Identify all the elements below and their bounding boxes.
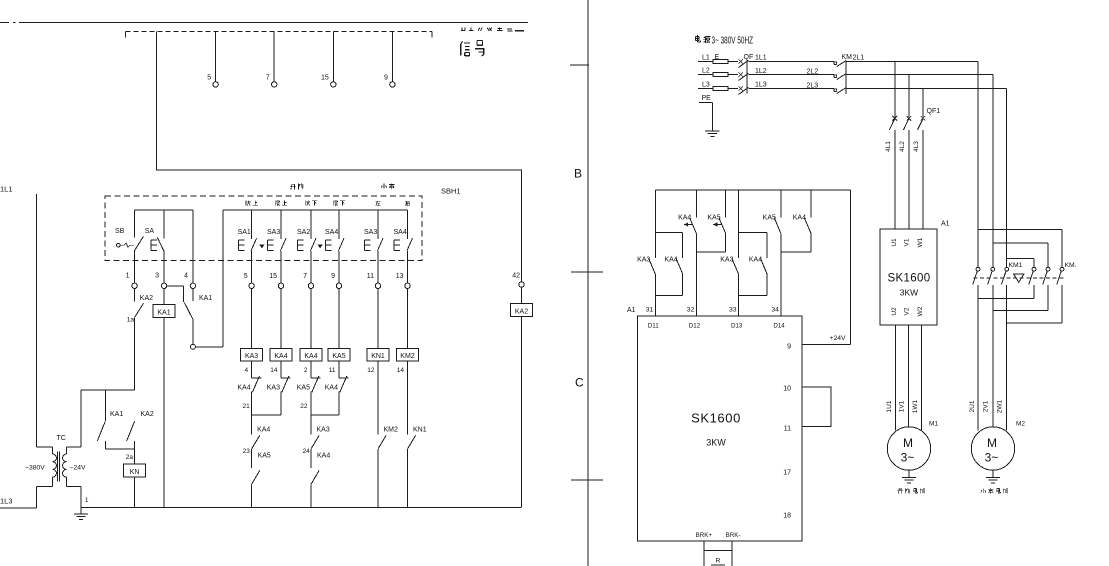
svg-text:M2: M2	[1016, 421, 1025, 428]
svg-text:3: 3	[155, 273, 159, 280]
svg-text:2L2: 2L2	[807, 69, 819, 76]
svg-text:A1: A1	[941, 221, 950, 228]
svg-text:7: 7	[266, 75, 270, 82]
svg-text:BRK+: BRK+	[696, 532, 713, 539]
svg-text:KA1: KA1	[199, 295, 212, 302]
svg-text:KN: KN	[130, 469, 140, 476]
svg-text:SA: SA	[145, 228, 155, 235]
svg-text:KA4: KA4	[325, 385, 338, 392]
svg-text:KA4: KA4	[793, 215, 806, 222]
svg-text:D11: D11	[648, 323, 659, 330]
svg-text:R: R	[716, 558, 721, 565]
svg-text:L2: L2	[702, 67, 710, 74]
svg-text:QF1: QF1	[927, 108, 941, 115]
svg-text:2: 2	[304, 367, 308, 374]
svg-text:3KW: 3KW	[900, 288, 918, 298]
svg-text:KA4: KA4	[749, 257, 762, 264]
svg-text:18: 18	[783, 512, 791, 519]
svg-text:KM2: KM2	[384, 427, 399, 434]
svg-text:D14: D14	[773, 323, 785, 330]
svg-text:U1: U1	[891, 238, 898, 247]
svg-text:KM: KM	[842, 54, 853, 61]
svg-text:KA5: KA5	[297, 385, 310, 392]
svg-text:SK1600: SK1600	[887, 273, 930, 285]
svg-text:1L3: 1L3	[755, 82, 767, 89]
svg-text:31: 31	[646, 307, 654, 314]
svg-text:1L1: 1L1	[755, 54, 767, 61]
svg-text:1L1: 1L1	[0, 185, 13, 194]
svg-text:KA3: KA3	[637, 257, 650, 264]
svg-text:C: C	[575, 376, 584, 390]
svg-text:V1: V1	[904, 238, 911, 246]
svg-text:1a: 1a	[127, 317, 135, 324]
svg-text:2U1: 2U1	[969, 400, 976, 412]
svg-text:KA3: KA3	[720, 257, 733, 264]
svg-text:12: 12	[367, 367, 375, 374]
svg-text:3~: 3~	[985, 451, 999, 465]
svg-text:2L3: 2L3	[807, 82, 819, 89]
svg-text:4L1: 4L1	[885, 141, 892, 152]
svg-text:B: B	[574, 167, 582, 181]
svg-text:4: 4	[184, 273, 188, 280]
svg-text:1L3: 1L3	[0, 497, 13, 506]
svg-text:9: 9	[331, 273, 335, 280]
svg-text:SK1600: SK1600	[691, 411, 741, 426]
svg-text:SA3: SA3	[267, 229, 280, 236]
svg-text:SBH1: SBH1	[441, 187, 461, 196]
svg-text:PE: PE	[702, 95, 712, 102]
svg-text:KA5: KA5	[332, 353, 345, 360]
svg-text:11: 11	[367, 273, 374, 280]
svg-text:~380V: ~380V	[25, 465, 45, 472]
svg-text:V2: V2	[904, 307, 911, 315]
svg-text:1U1: 1U1	[886, 400, 893, 412]
svg-text:KA5: KA5	[763, 215, 776, 222]
svg-text:M1: M1	[929, 421, 938, 428]
svg-text:KA3: KA3	[267, 385, 280, 392]
svg-text:9: 9	[384, 75, 388, 82]
svg-text:KN1: KN1	[413, 427, 427, 434]
svg-text:15: 15	[269, 273, 277, 280]
svg-text:W2: W2	[917, 306, 924, 316]
svg-text:33: 33	[729, 307, 737, 314]
svg-text:15: 15	[321, 75, 329, 82]
svg-text:KA2: KA2	[141, 411, 154, 418]
svg-text:2W1: 2W1	[996, 399, 1003, 413]
svg-text:17: 17	[783, 469, 791, 476]
svg-text:24: 24	[303, 448, 311, 455]
svg-text:KM2: KM2	[400, 353, 415, 360]
svg-text:7: 7	[303, 273, 307, 280]
svg-text:KA1: KA1	[157, 309, 170, 316]
svg-text:A1: A1	[627, 307, 636, 314]
svg-text:KA5: KA5	[707, 215, 720, 222]
svg-text:2L1: 2L1	[853, 54, 865, 61]
svg-text:1: 1	[126, 273, 130, 280]
svg-text:SB: SB	[115, 228, 125, 235]
svg-text:21: 21	[242, 403, 250, 410]
svg-text:1L2: 1L2	[755, 68, 767, 75]
svg-text:SA3: SA3	[364, 229, 377, 236]
svg-text:KA4: KA4	[274, 353, 287, 360]
svg-text:BRK-: BRK-	[726, 532, 741, 539]
svg-text:QF: QF	[744, 54, 754, 61]
svg-text:2a: 2a	[126, 454, 134, 461]
svg-text:KA3: KA3	[317, 427, 330, 434]
svg-text:D13: D13	[731, 323, 743, 330]
svg-text:KA2: KA2	[140, 295, 153, 302]
svg-text:KA3: KA3	[245, 353, 258, 360]
svg-text:2V1: 2V1	[983, 400, 990, 412]
svg-text:KA4: KA4	[678, 215, 691, 222]
svg-text:E: E	[715, 54, 720, 61]
svg-text:D12: D12	[689, 323, 701, 330]
svg-text:4L2: 4L2	[899, 141, 906, 152]
svg-text:22: 22	[300, 403, 308, 410]
svg-text:U2: U2	[891, 307, 898, 316]
svg-text:TC: TC	[57, 435, 66, 442]
svg-text:KN1: KN1	[371, 353, 385, 360]
svg-text:11: 11	[784, 426, 791, 433]
svg-text:3~: 3~	[901, 451, 915, 465]
svg-text:L3: L3	[702, 81, 710, 88]
svg-text:SA4: SA4	[325, 229, 338, 236]
svg-text:1V1: 1V1	[899, 400, 906, 412]
svg-text:KM1: KM1	[1009, 262, 1023, 269]
svg-text:KA4: KA4	[317, 453, 330, 460]
svg-text:42: 42	[512, 273, 520, 280]
svg-text:KA5: KA5	[258, 453, 271, 460]
svg-text:~24V: ~24V	[70, 465, 87, 472]
svg-text:KA4: KA4	[664, 257, 677, 264]
svg-text:11: 11	[329, 367, 336, 374]
svg-text:L1: L1	[702, 54, 710, 61]
svg-text:SA1: SA1	[238, 229, 251, 236]
svg-text:SA2: SA2	[297, 229, 310, 236]
svg-text:13: 13	[396, 273, 404, 280]
svg-text:3KW: 3KW	[706, 438, 726, 448]
svg-text:+24V: +24V	[830, 335, 847, 342]
svg-text:KA2: KA2	[515, 309, 528, 316]
svg-text:SA4: SA4	[394, 229, 407, 236]
svg-text:34: 34	[771, 307, 779, 314]
svg-text:4: 4	[244, 367, 248, 374]
svg-text:1: 1	[85, 497, 89, 504]
svg-text:9: 9	[787, 343, 791, 350]
svg-text:3~ 380V 50HZ: 3~ 380V 50HZ	[712, 36, 754, 47]
svg-text:KA1: KA1	[110, 411, 123, 418]
svg-text:14: 14	[397, 367, 405, 374]
svg-text:KM.: KM.	[1065, 262, 1077, 269]
svg-text:32: 32	[687, 307, 695, 314]
svg-text:KA4: KA4	[237, 385, 250, 392]
svg-text:5: 5	[207, 75, 211, 82]
svg-text:KA4: KA4	[257, 427, 270, 434]
svg-text:14: 14	[270, 367, 278, 374]
svg-text:4L3: 4L3	[913, 141, 920, 152]
svg-text:23: 23	[243, 448, 251, 455]
svg-text:10: 10	[783, 386, 791, 393]
svg-text:W1: W1	[917, 237, 924, 247]
svg-text:1W1: 1W1	[912, 399, 919, 413]
svg-text:M: M	[987, 436, 997, 450]
svg-text:5: 5	[244, 273, 248, 280]
svg-text:M: M	[903, 436, 913, 450]
svg-text:KA4: KA4	[304, 353, 317, 360]
